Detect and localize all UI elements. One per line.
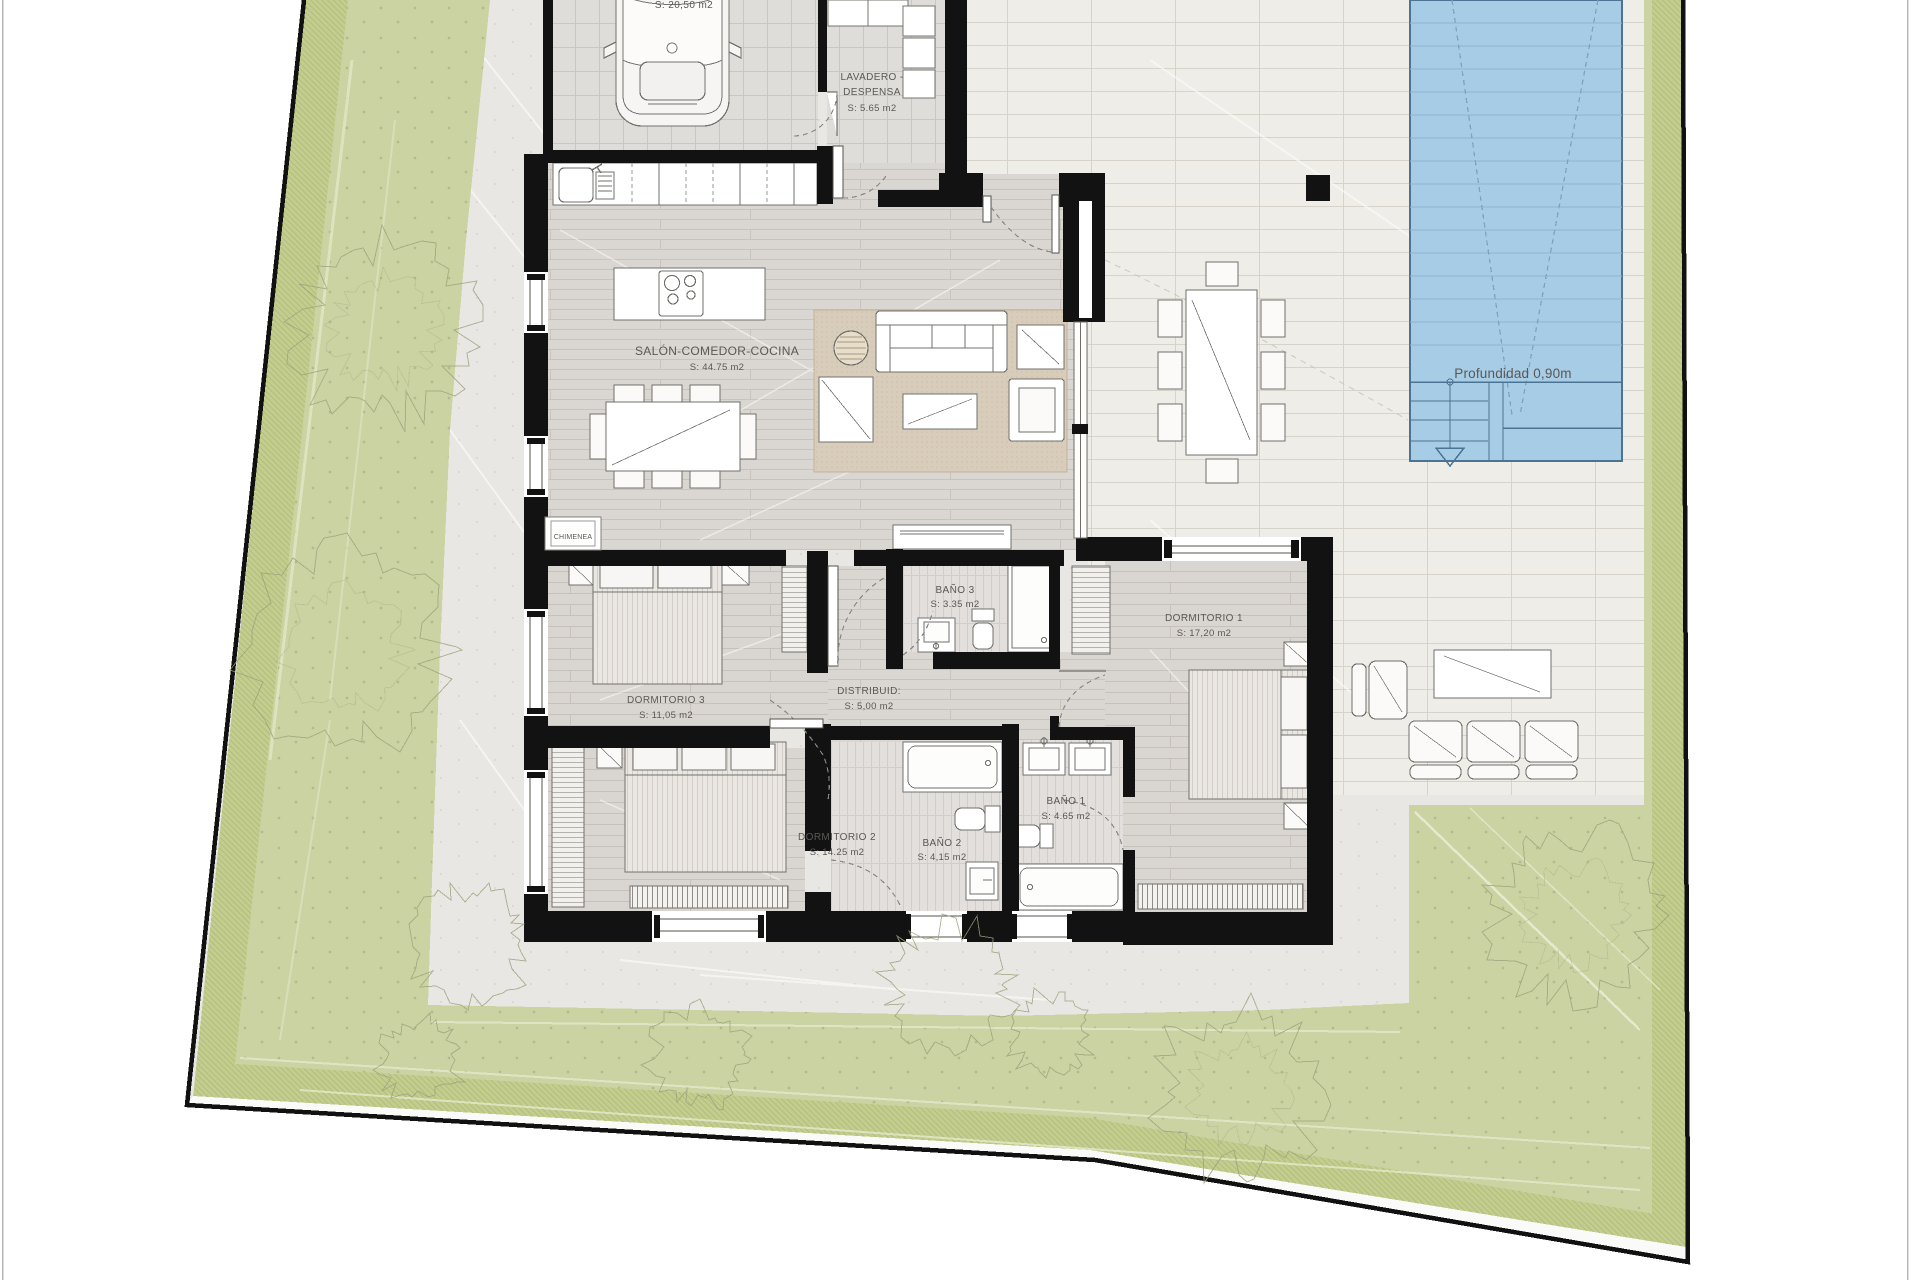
svg-text:BAÑO 3: BAÑO 3: [935, 583, 974, 596]
svg-text:BAÑO 1: BAÑO 1: [1046, 794, 1085, 807]
svg-text:S: 44.75 m2: S: 44.75 m2: [690, 362, 745, 373]
svg-text:S: 17,20 m2: S: 17,20 m2: [1177, 628, 1232, 639]
svg-text:LAVADERO -: LAVADERO -: [840, 72, 903, 83]
svg-text:S: 3.35 m2: S: 3.35 m2: [931, 599, 980, 610]
svg-text:S: 20,50 m2: S: 20,50 m2: [655, 0, 713, 11]
svg-text:S: 4,15 m2: S: 4,15 m2: [918, 852, 967, 863]
svg-text:S: 14.25 m2: S: 14.25 m2: [810, 847, 865, 858]
svg-text:CHIMENEA: CHIMENEA: [554, 534, 593, 541]
svg-text:DESPENSA: DESPENSA: [843, 87, 901, 98]
svg-text:DORMITORIO 2: DORMITORIO 2: [798, 832, 876, 843]
svg-text:S: 5,00 m2: S: 5,00 m2: [845, 701, 894, 712]
svg-text:S: 5.65 m2: S: 5.65 m2: [848, 103, 897, 114]
svg-text:DISTRIBUID:: DISTRIBUID:: [837, 686, 901, 697]
svg-text:SALÓN-COMEDOR-COCINA: SALÓN-COMEDOR-COCINA: [635, 343, 799, 358]
svg-text:S: 4.65 m2: S: 4.65 m2: [1042, 811, 1091, 822]
svg-text:BAÑO 2: BAÑO 2: [922, 836, 961, 849]
svg-text:DORMITORIO 1: DORMITORIO 1: [1165, 613, 1243, 624]
svg-text:DORMITORIO 3: DORMITORIO 3: [627, 695, 705, 706]
svg-text:S: 11,05 m2: S: 11,05 m2: [639, 710, 693, 721]
svg-text:Profundidad 0,90m: Profundidad 0,90m: [1454, 366, 1571, 381]
